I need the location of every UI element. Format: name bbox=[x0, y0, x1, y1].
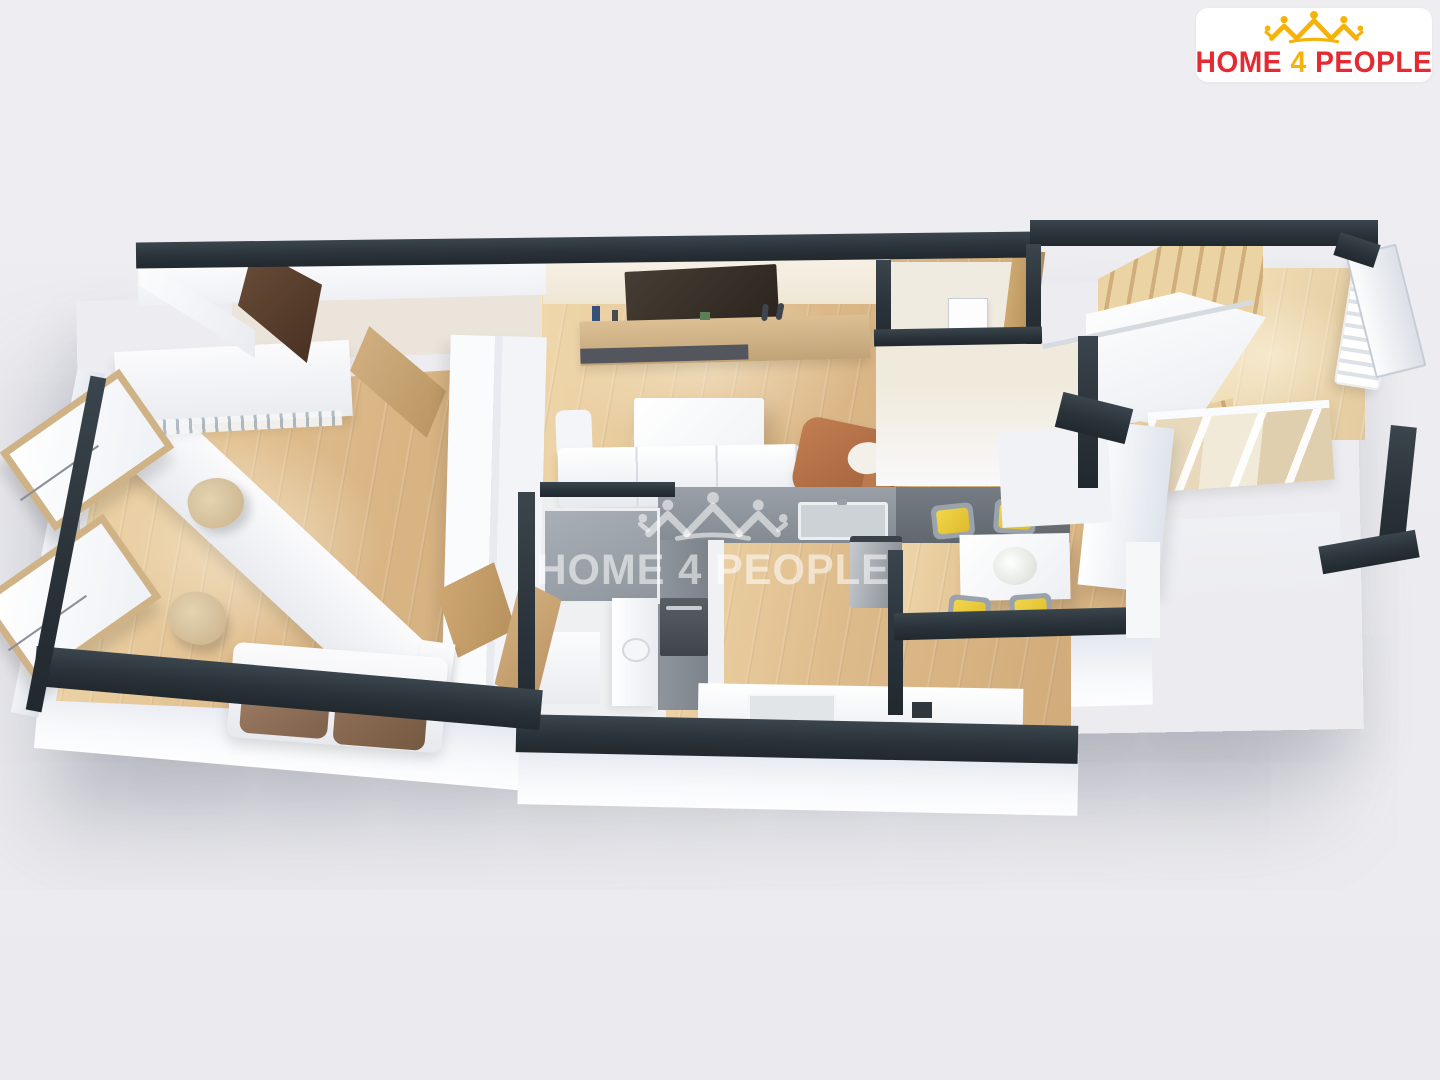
floorplan-screenshot: HOME 4 PEOPLE HOME 4 PEOPLE bbox=[0, 0, 1440, 1080]
houses-and-people-crown-icon bbox=[1262, 11, 1366, 44]
brand-logo-text: HOME 4 PEOPLE bbox=[1196, 46, 1433, 80]
sink-basin bbox=[622, 638, 650, 662]
brand-word-home: HOME bbox=[1196, 46, 1282, 80]
shower-tray bbox=[542, 508, 660, 604]
decor-item bbox=[700, 312, 710, 320]
brand-logo-card: HOME 4 PEOPLE bbox=[1196, 8, 1432, 82]
wall-bathroom-top bbox=[540, 482, 675, 497]
dining-table bbox=[959, 533, 1070, 601]
oven-handle bbox=[666, 606, 702, 610]
media-bench-front bbox=[580, 344, 749, 363]
kitchen-dark-box bbox=[912, 702, 932, 718]
media-bench bbox=[579, 314, 870, 366]
top-wall-right bbox=[1030, 220, 1378, 246]
kitchen-sink bbox=[798, 502, 888, 540]
brand-word-people: PEOPLE bbox=[1315, 46, 1432, 80]
flower-vase bbox=[993, 547, 1038, 586]
wall-under-storage bbox=[874, 327, 1042, 347]
bathroom-sink-cabinet bbox=[612, 598, 658, 706]
chair-cushion bbox=[936, 507, 970, 534]
decor-item bbox=[592, 306, 600, 321]
faucet bbox=[837, 499, 847, 505]
oven bbox=[660, 598, 708, 656]
brand-word-4: 4 bbox=[1291, 46, 1307, 80]
wall-dining-right-face bbox=[1126, 542, 1160, 638]
glass-partition bbox=[1147, 400, 1334, 493]
decor-item bbox=[612, 310, 618, 321]
